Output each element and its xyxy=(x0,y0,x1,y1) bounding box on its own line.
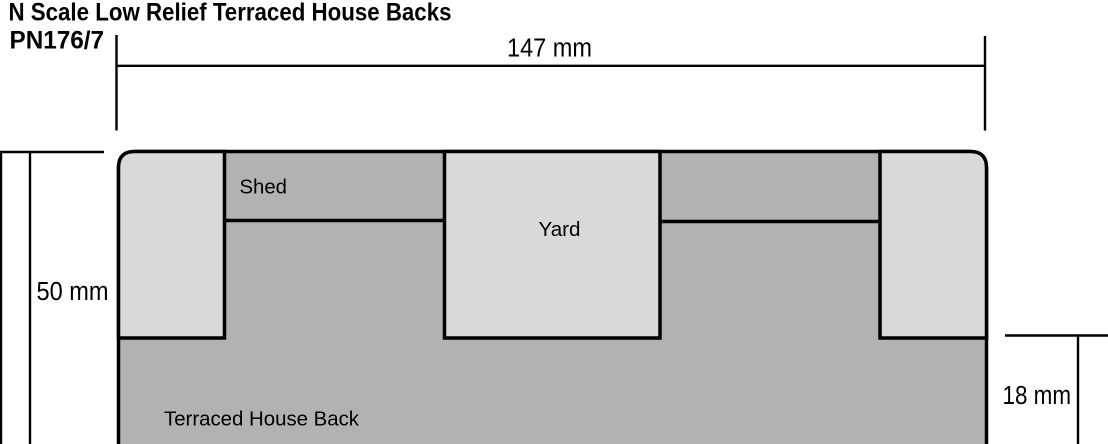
svg-text:Terraced House Back: Terraced House Back xyxy=(164,408,360,431)
svg-text:147 mm: 147 mm xyxy=(507,34,592,62)
svg-text:Yard: Yard xyxy=(539,218,581,241)
svg-text:50 mm: 50 mm xyxy=(37,278,109,306)
svg-text:PN176/7: PN176/7 xyxy=(10,27,105,55)
svg-text:Shed: Shed xyxy=(240,176,288,199)
svg-text:N Scale Low Relief Terraced Ho: N Scale Low Relief Terraced House Backs xyxy=(9,0,452,26)
svg-text:18 mm: 18 mm xyxy=(1003,382,1072,410)
